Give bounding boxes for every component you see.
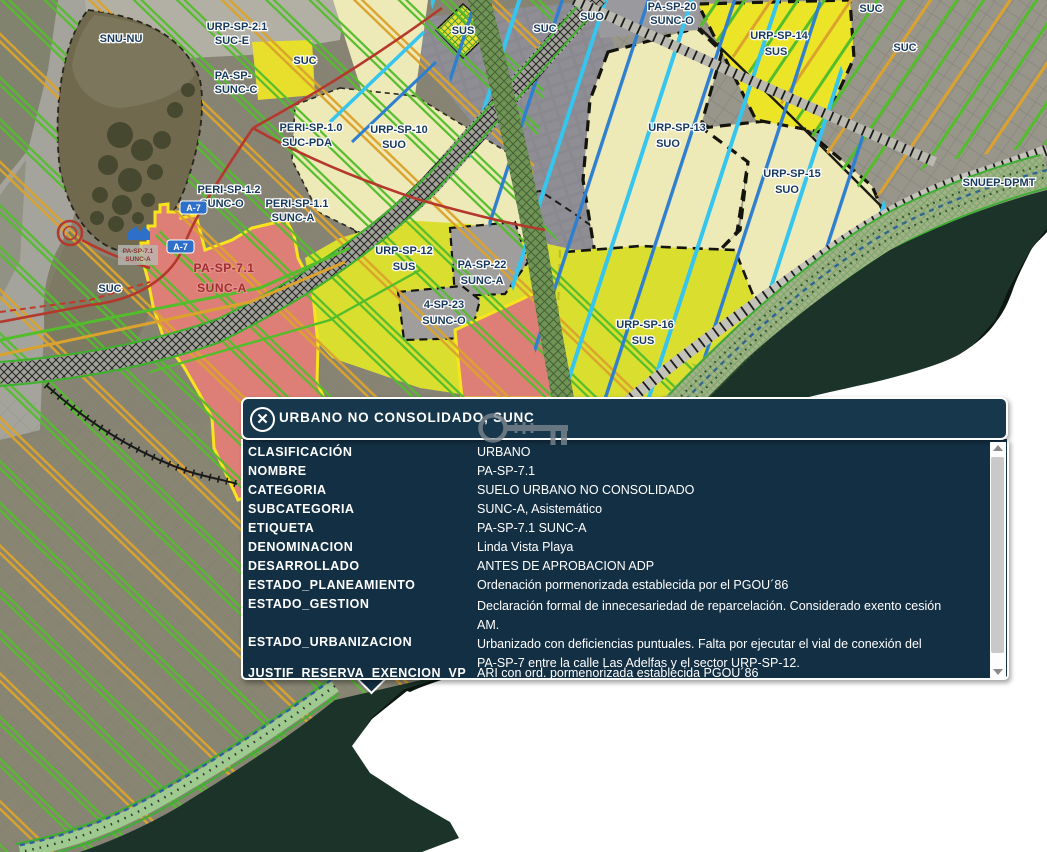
svg-text:SUNC-O: SUNC-O xyxy=(650,15,694,27)
svg-text:4-SP-23: 4-SP-23 xyxy=(424,299,464,311)
svg-text:PA-SP-22: PA-SP-22 xyxy=(458,259,507,271)
svg-text:PA-SP-20: PA-SP-20 xyxy=(648,1,697,13)
svg-text:URP-SP-16: URP-SP-16 xyxy=(616,319,673,331)
svg-text:SUC-E: SUC-E xyxy=(215,35,249,47)
svg-text:SUC: SUC xyxy=(859,3,882,15)
svg-text:SUNC-A: SUNC-A xyxy=(197,281,247,295)
svg-text:PERI-SP-1.2: PERI-SP-1.2 xyxy=(198,184,261,196)
svg-text:PERI-SP-1.1: PERI-SP-1.1 xyxy=(266,198,329,210)
svg-text:SNU-NU: SNU-NU xyxy=(100,33,143,45)
svg-text:SUS: SUS xyxy=(452,25,475,37)
svg-text:SUS: SUS xyxy=(632,335,655,347)
svg-text:URP-SP-15: URP-SP-15 xyxy=(763,168,820,180)
svg-text:A-7: A-7 xyxy=(173,242,188,252)
svg-text:SUO: SUO xyxy=(382,139,406,151)
svg-text:SUNC-A: SUNC-A xyxy=(125,256,151,263)
svg-text:SUO: SUO xyxy=(656,138,680,150)
svg-text:URP-SP-2.1: URP-SP-2.1 xyxy=(207,21,268,33)
svg-text:SUO: SUO xyxy=(775,184,799,196)
svg-text:PERI-SP-1.0: PERI-SP-1.0 xyxy=(280,122,343,134)
svg-text:A-7: A-7 xyxy=(186,203,201,213)
svg-text:SUC: SUC xyxy=(533,23,556,35)
svg-text:SUC: SUC xyxy=(293,55,316,67)
svg-text:URP-SP-12: URP-SP-12 xyxy=(375,245,432,257)
svg-text:SUO: SUO xyxy=(580,11,604,23)
svg-text:SUC-PDA: SUC-PDA xyxy=(282,137,332,149)
svg-text:SUNC-O: SUNC-O xyxy=(422,315,466,327)
svg-text:SUS: SUS xyxy=(765,46,788,58)
svg-text:SUC: SUC xyxy=(893,42,916,54)
svg-text:SUNC-A: SUNC-A xyxy=(272,212,315,224)
svg-text:URP-SP-10: URP-SP-10 xyxy=(370,124,427,136)
svg-text:SUS: SUS xyxy=(393,261,416,273)
svg-text:SUNC-A: SUNC-A xyxy=(461,275,504,287)
svg-text:SUC: SUC xyxy=(98,283,121,295)
svg-text:URP-SP-13: URP-SP-13 xyxy=(648,122,705,134)
svg-text:URP-SP-14: URP-SP-14 xyxy=(750,30,808,42)
svg-text:SUNC-C: SUNC-C xyxy=(215,84,258,96)
svg-text:PA-SP-7.1: PA-SP-7.1 xyxy=(123,248,154,255)
svg-text:PA-SP-: PA-SP- xyxy=(215,70,252,82)
svg-text:SNUEP-DPMT: SNUEP-DPMT xyxy=(963,177,1036,189)
svg-text:PA-SP-7.1: PA-SP-7.1 xyxy=(194,261,255,275)
